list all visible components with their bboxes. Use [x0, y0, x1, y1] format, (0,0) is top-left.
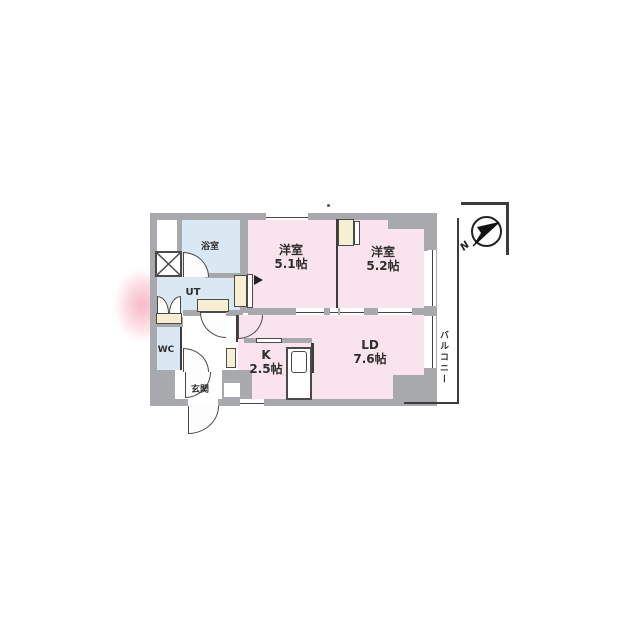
- toilet-label: WC: [141, 345, 191, 355]
- north-arrow-icon: [466, 212, 506, 252]
- ld-label: LD 7.6帖: [330, 339, 410, 367]
- window-bedroom2-right: [428, 250, 436, 306]
- bedroom1-label: 洋室 5.1帖: [251, 244, 331, 272]
- front-door-opening: [188, 399, 218, 406]
- bedroom1-name: 洋室: [279, 243, 303, 257]
- door-swing-arrow-icon: [254, 275, 263, 285]
- wall-pillar-top-right: [388, 213, 437, 229]
- compass-bracket-top: [461, 202, 509, 205]
- bedroom2-closet-slider: [354, 221, 360, 245]
- bedroom1-size: 5.1帖: [274, 257, 307, 271]
- bedroom1-door-track: [247, 274, 253, 308]
- window-bedroom1-top: [266, 213, 308, 220]
- kitchen-size: 2.5帖: [249, 362, 282, 376]
- floorplan-image: バルコニー N 洋室 5.1帖 洋室 5.2帖 LD 7.6帖 K 2.5帖 浴…: [0, 0, 640, 640]
- bedroom2-name: 洋室: [371, 245, 395, 259]
- ld-size: 7.6帖: [353, 352, 386, 366]
- washbasin-counter: [197, 299, 229, 312]
- kitchen-label: K 2.5帖: [226, 349, 306, 377]
- bedroom1-door-panel: [234, 275, 247, 307]
- sill-bottom: [240, 399, 264, 406]
- utility-door-arc-icon: [200, 312, 226, 338]
- balcony-label: バルコニー: [437, 330, 450, 385]
- pipe-shaft-box: [155, 251, 182, 277]
- opening-kitchen: [256, 338, 282, 343]
- slider-gap: [330, 308, 338, 315]
- entry-step: [224, 383, 240, 397]
- x-cross-icon: [157, 253, 180, 275]
- slider-bedroom1-ld: [296, 308, 324, 315]
- wall-pillar-bottom-right: [393, 375, 428, 399]
- slider-bedroom2-ld-2: [378, 308, 412, 315]
- bedroom2-size: 5.2帖: [366, 259, 399, 273]
- utility-label: UT: [168, 287, 218, 299]
- wall-entry-left: [150, 370, 175, 406]
- bedroom2-closet: [338, 219, 354, 246]
- bath-label: 浴室: [185, 242, 235, 252]
- front-door-arc-icon: [188, 406, 219, 434]
- ld-name: LD: [361, 338, 379, 352]
- compass-bracket-right: [506, 202, 509, 255]
- slider-bedroom2-ld-1: [340, 308, 364, 315]
- balcony-bottom-line: [404, 402, 459, 404]
- bedroom2-label: 洋室 5.2帖: [343, 246, 423, 274]
- shoe-cabinet: [156, 313, 182, 324]
- window-ld-right: [428, 316, 436, 368]
- kitchen-name: K: [261, 348, 270, 362]
- entrance-label: 玄関: [175, 385, 225, 395]
- speck-artifact: [327, 204, 330, 207]
- wall-right-upper: [424, 229, 437, 251]
